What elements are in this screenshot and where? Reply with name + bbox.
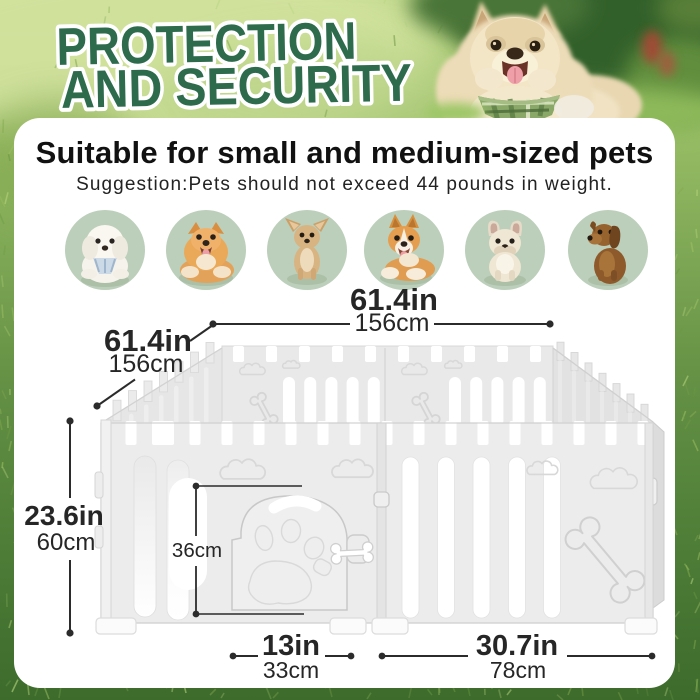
svg-text:156cm: 156cm — [108, 350, 183, 378]
svg-text:60cm: 60cm — [37, 529, 96, 556]
svg-text:23.6in: 23.6in — [24, 500, 103, 531]
svg-text:33cm: 33cm — [263, 657, 319, 683]
svg-text:156cm: 156cm — [354, 309, 429, 337]
svg-text:36cm: 36cm — [172, 539, 222, 562]
svg-text:78cm: 78cm — [490, 657, 546, 683]
